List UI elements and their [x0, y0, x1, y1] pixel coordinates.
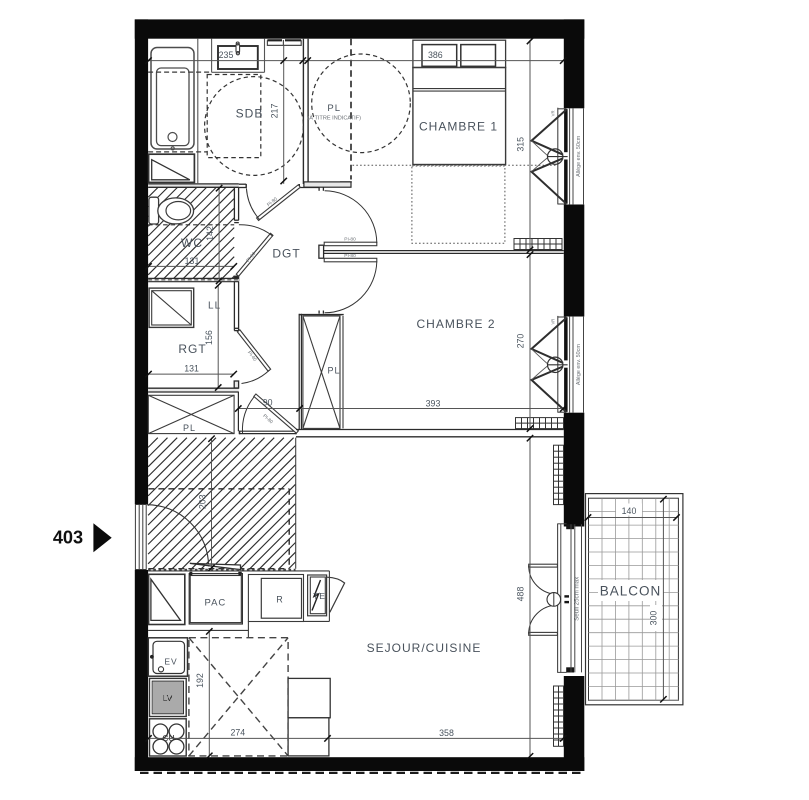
svg-text:315: 315 — [516, 137, 526, 152]
svg-text:131: 131 — [185, 256, 200, 266]
svg-text:Allège env. 50cm: Allège env. 50cm — [576, 344, 582, 385]
svg-text:TE: TE — [313, 591, 326, 601]
svg-text:Allège env. 50cm: Allège env. 50cm — [576, 135, 582, 176]
svg-text:358: 358 — [439, 728, 454, 738]
svg-text:LL: LL — [208, 301, 221, 312]
svg-text:192: 192 — [195, 673, 205, 688]
svg-text:386: 386 — [428, 50, 443, 60]
svg-text:PI-80: PI-80 — [344, 236, 356, 242]
svg-text:90: 90 — [263, 398, 273, 408]
svg-text:300: 300 — [649, 611, 659, 626]
svg-text:156: 156 — [204, 330, 214, 345]
svg-text:VR: VR — [551, 110, 556, 116]
svg-text:CHAMBRE 1: CHAMBRE 1 — [419, 120, 498, 134]
svg-text:393: 393 — [426, 398, 441, 408]
svg-text:R: R — [276, 595, 284, 605]
svg-text:CHAMBRE 2: CHAMBRE 2 — [416, 317, 495, 331]
svg-text:WC: WC — [181, 236, 203, 250]
svg-text:VR: VR — [551, 319, 556, 325]
svg-text:(À TITRE INDICATIF): (À TITRE INDICATIF) — [307, 115, 361, 122]
svg-text:PL: PL — [327, 103, 341, 114]
svg-text:SEJOUR/CUISINE: SEJOUR/CUISINE — [367, 641, 482, 655]
svg-text:235: 235 — [219, 50, 234, 60]
svg-text:488: 488 — [516, 587, 526, 602]
svg-text:217: 217 — [270, 104, 280, 119]
svg-text:131: 131 — [184, 363, 199, 373]
svg-text:BALCON: BALCON — [600, 584, 662, 599]
svg-text:PL: PL — [183, 423, 196, 433]
svg-text:SDB: SDB — [236, 107, 264, 121]
svg-text:274: 274 — [230, 727, 245, 737]
svg-text:PAC: PAC — [204, 598, 226, 609]
svg-text:RGT: RGT — [178, 342, 206, 356]
svg-text:270: 270 — [515, 334, 525, 349]
svg-text:EV: EV — [164, 657, 177, 667]
svg-text:LV: LV — [163, 693, 173, 703]
svg-text:PI-80: PI-80 — [344, 253, 356, 259]
svg-text:403: 403 — [53, 528, 83, 548]
svg-text:203: 203 — [198, 494, 208, 509]
svg-text:140: 140 — [622, 506, 637, 516]
svg-text:Seuil 25cm max: Seuil 25cm max — [574, 576, 581, 621]
svg-text:142: 142 — [205, 226, 215, 241]
svg-text:PL: PL — [327, 366, 340, 376]
svg-text:DGT: DGT — [272, 247, 300, 261]
